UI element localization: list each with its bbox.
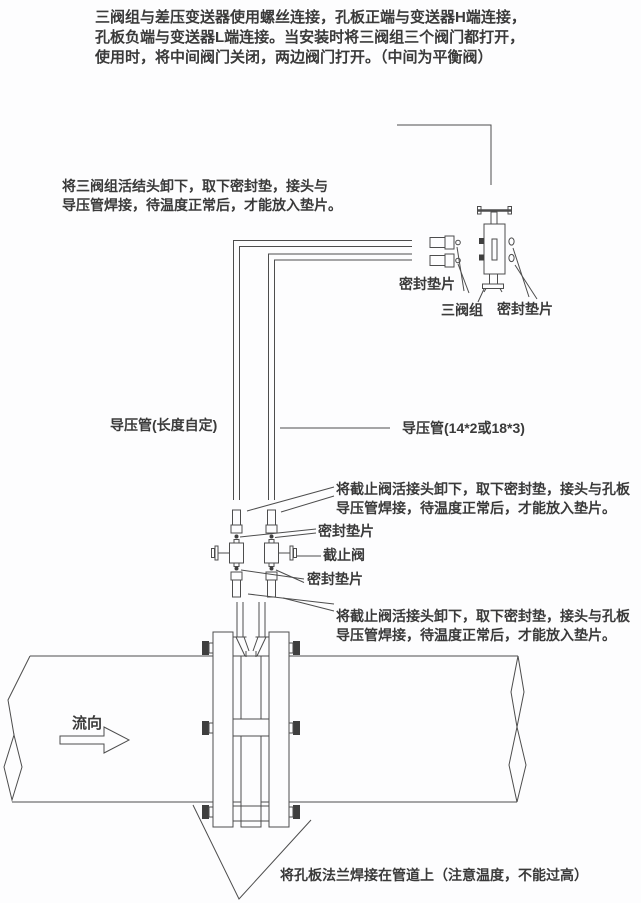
label-seal-gasket-top-left: 密封垫片: [399, 275, 455, 294]
note-line: 将截止阀活接头卸下，取下密封垫，接头与孔板: [336, 607, 630, 626]
orifice-flange-assembly-drawing: [202, 632, 300, 827]
lower-impulse-pipes-drawing: [234, 602, 269, 657]
note-line: 使用时，将中间阀门关闭，两边阀门打开。（中间为平衡阀）: [95, 48, 526, 68]
diagram-linework: [0, 0, 641, 903]
label-three-valve-manifold: 三阀组: [441, 301, 483, 320]
impulse-elbow-pipes-drawing: [234, 241, 413, 501]
note-flange-welding: 将孔板法兰焊接在管道上（注意温度，不能过高）: [280, 866, 588, 885]
three-valve-manifold-drawing: [477, 207, 514, 293]
note-line: 将三阀组活结头卸下，取下密封垫，接头与: [62, 177, 342, 196]
label-seal-gasket-top-right: 密封垫片: [497, 300, 553, 319]
label-impulse-pipe-right: 导压管(14*2或18*3): [402, 419, 525, 438]
shutoff-valve-right-drawing: [265, 510, 297, 597]
note-line: 导压管焊接，待温度正常后，才能放入垫片。: [336, 626, 630, 645]
note-manifold-union: 将三阀组活结头卸下，取下密封垫，接头与 导压管焊接，待温度正常后，才能放入垫片。: [62, 177, 342, 214]
manifold-union-fittings-drawing: [430, 236, 460, 267]
note-line: 三阀组与差压变送器使用螺丝连接，孔板正端与变送器H端连接，: [95, 8, 526, 28]
note-line: 将截止阀活接头卸下，取下密封垫，接头与孔板: [336, 480, 630, 499]
note-upper-valve-union: 将截止阀活接头卸下，取下密封垫，接头与孔板 导压管焊接，待温度正常后，才能放入垫…: [336, 480, 630, 517]
note-line: 导压管焊接，待温度正常后，才能放入垫片。: [336, 499, 630, 518]
installation-diagram: 三阀组与差压变送器使用螺丝连接，孔板正端与变送器H端连接， 孔板负端与变送器L端…: [0, 0, 641, 903]
label-shutoff-valve: 截止阀: [323, 546, 365, 565]
label-seal-gasket-valve-top: 密封垫片: [318, 522, 374, 541]
pointer-line-top: [397, 125, 491, 185]
label-seal-gasket-valve-bottom: 密封垫片: [307, 570, 363, 589]
note-line: 导压管焊接，待温度正常后，才能放入垫片。: [62, 196, 342, 215]
note-line: 孔板负端与变送器L端连接。当安装时将三阀组三个阀门都打开，: [95, 28, 526, 48]
label-impulse-pipe-left: 导压管(长度自定): [110, 416, 217, 435]
label-flow-direction: 流向: [72, 714, 102, 734]
shutoff-valve-left-drawing: [212, 510, 244, 597]
note-lower-valve-union: 将截止阀活接头卸下，取下密封垫，接头与孔板 导压管焊接，待温度正常后，才能放入垫…: [336, 607, 630, 644]
note-top-connection: 三阀组与差压变送器使用螺丝连接，孔板正端与变送器H端连接， 孔板负端与变送器L端…: [95, 8, 526, 68]
